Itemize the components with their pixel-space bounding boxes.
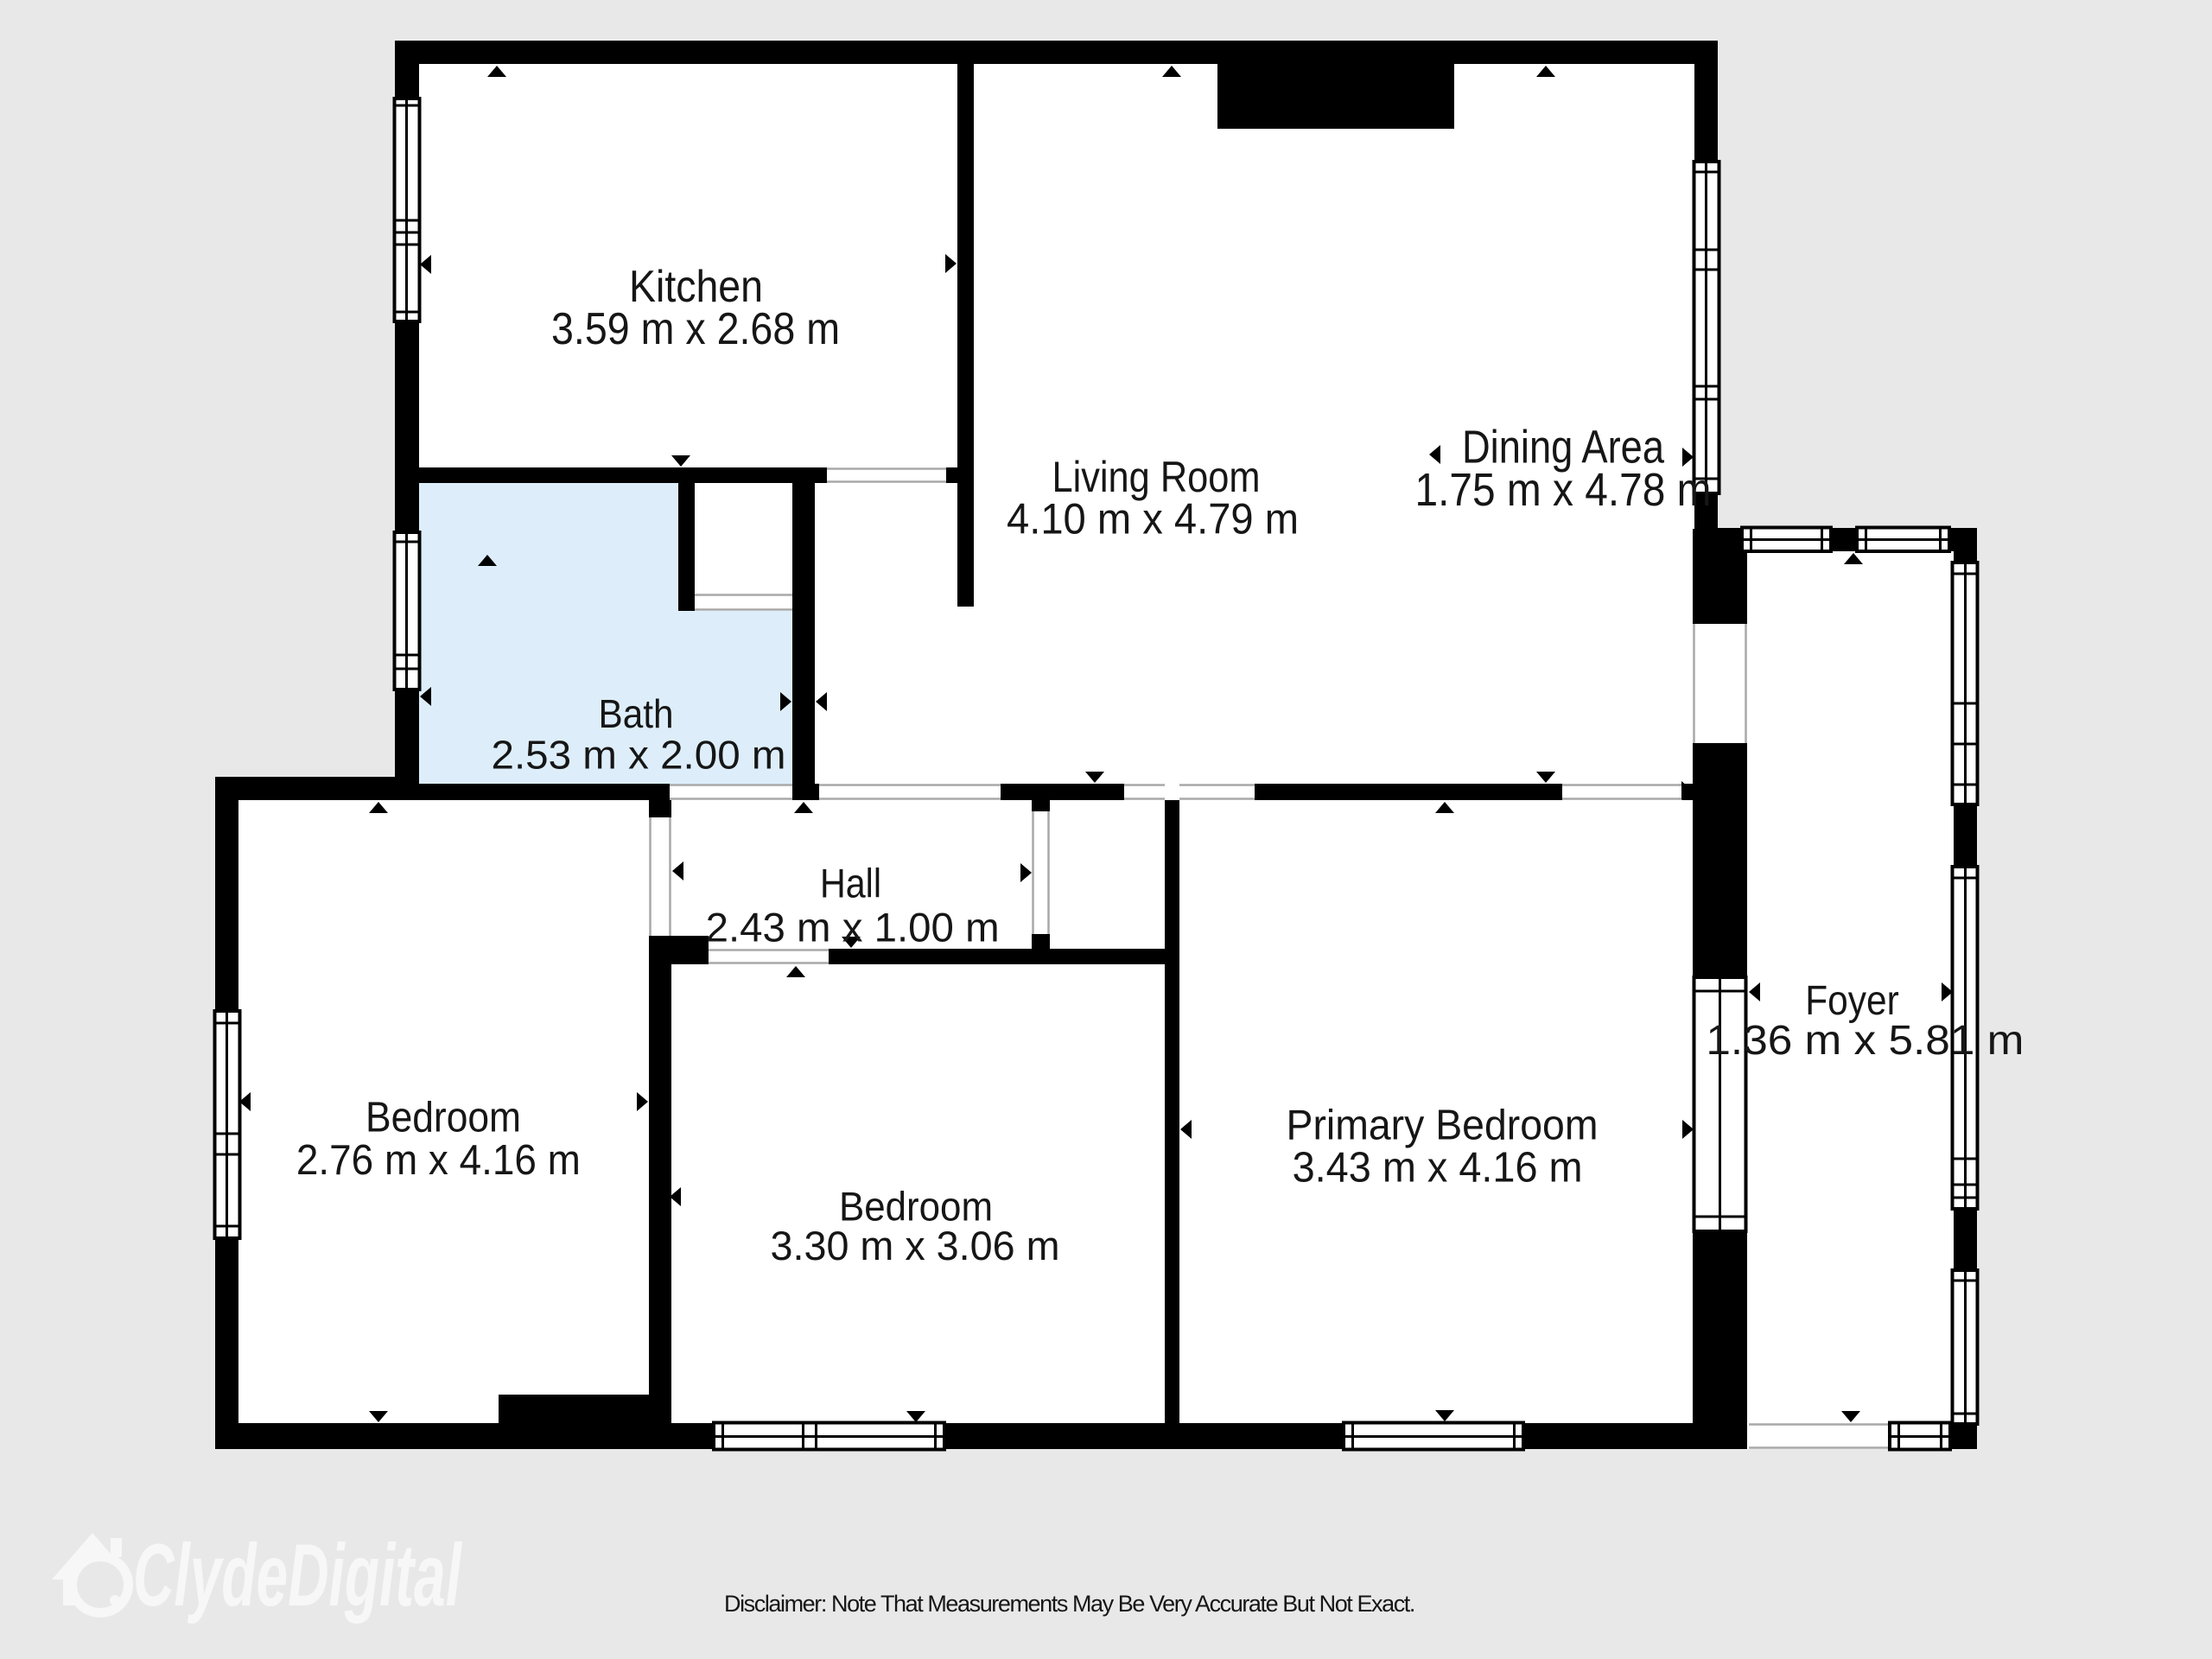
svg-text:1.75 m x 4.78 m: 1.75 m x 4.78 m xyxy=(1415,464,1712,516)
svg-text:2.53 m x 2.00 m: 2.53 m x 2.00 m xyxy=(492,733,786,778)
svg-text:Living Room: Living Room xyxy=(1052,453,1261,501)
svg-text:Bath: Bath xyxy=(599,691,674,736)
svg-text:4.10 m x 4.79 m: 4.10 m x 4.79 m xyxy=(1007,495,1299,543)
svg-text:2.43 m x 1.00 m: 2.43 m x 1.00 m xyxy=(706,905,1000,950)
svg-text:3.43 m x 4.16 m: 3.43 m x 4.16 m xyxy=(1293,1145,1583,1192)
svg-text:1.36 m x 5.81 m: 1.36 m x 5.81 m xyxy=(1706,1018,2024,1064)
svg-text:Disclaimer: Note That Measurem: Disclaimer: Note That Measurements May B… xyxy=(724,1591,1415,1617)
svg-text:3.30 m x 3.06 m: 3.30 m x 3.06 m xyxy=(771,1223,1060,1268)
svg-text:ClydeDigital: ClydeDigital xyxy=(133,1526,463,1624)
svg-text:Hall: Hall xyxy=(820,861,881,906)
svg-text:2.76 m x 4.16 m: 2.76 m x 4.16 m xyxy=(296,1137,581,1184)
svg-text:Primary Bedroom: Primary Bedroom xyxy=(1287,1103,1599,1149)
svg-text:3.59 m x 2.68 m: 3.59 m x 2.68 m xyxy=(551,304,840,354)
svg-text:Bedroom: Bedroom xyxy=(365,1095,521,1141)
